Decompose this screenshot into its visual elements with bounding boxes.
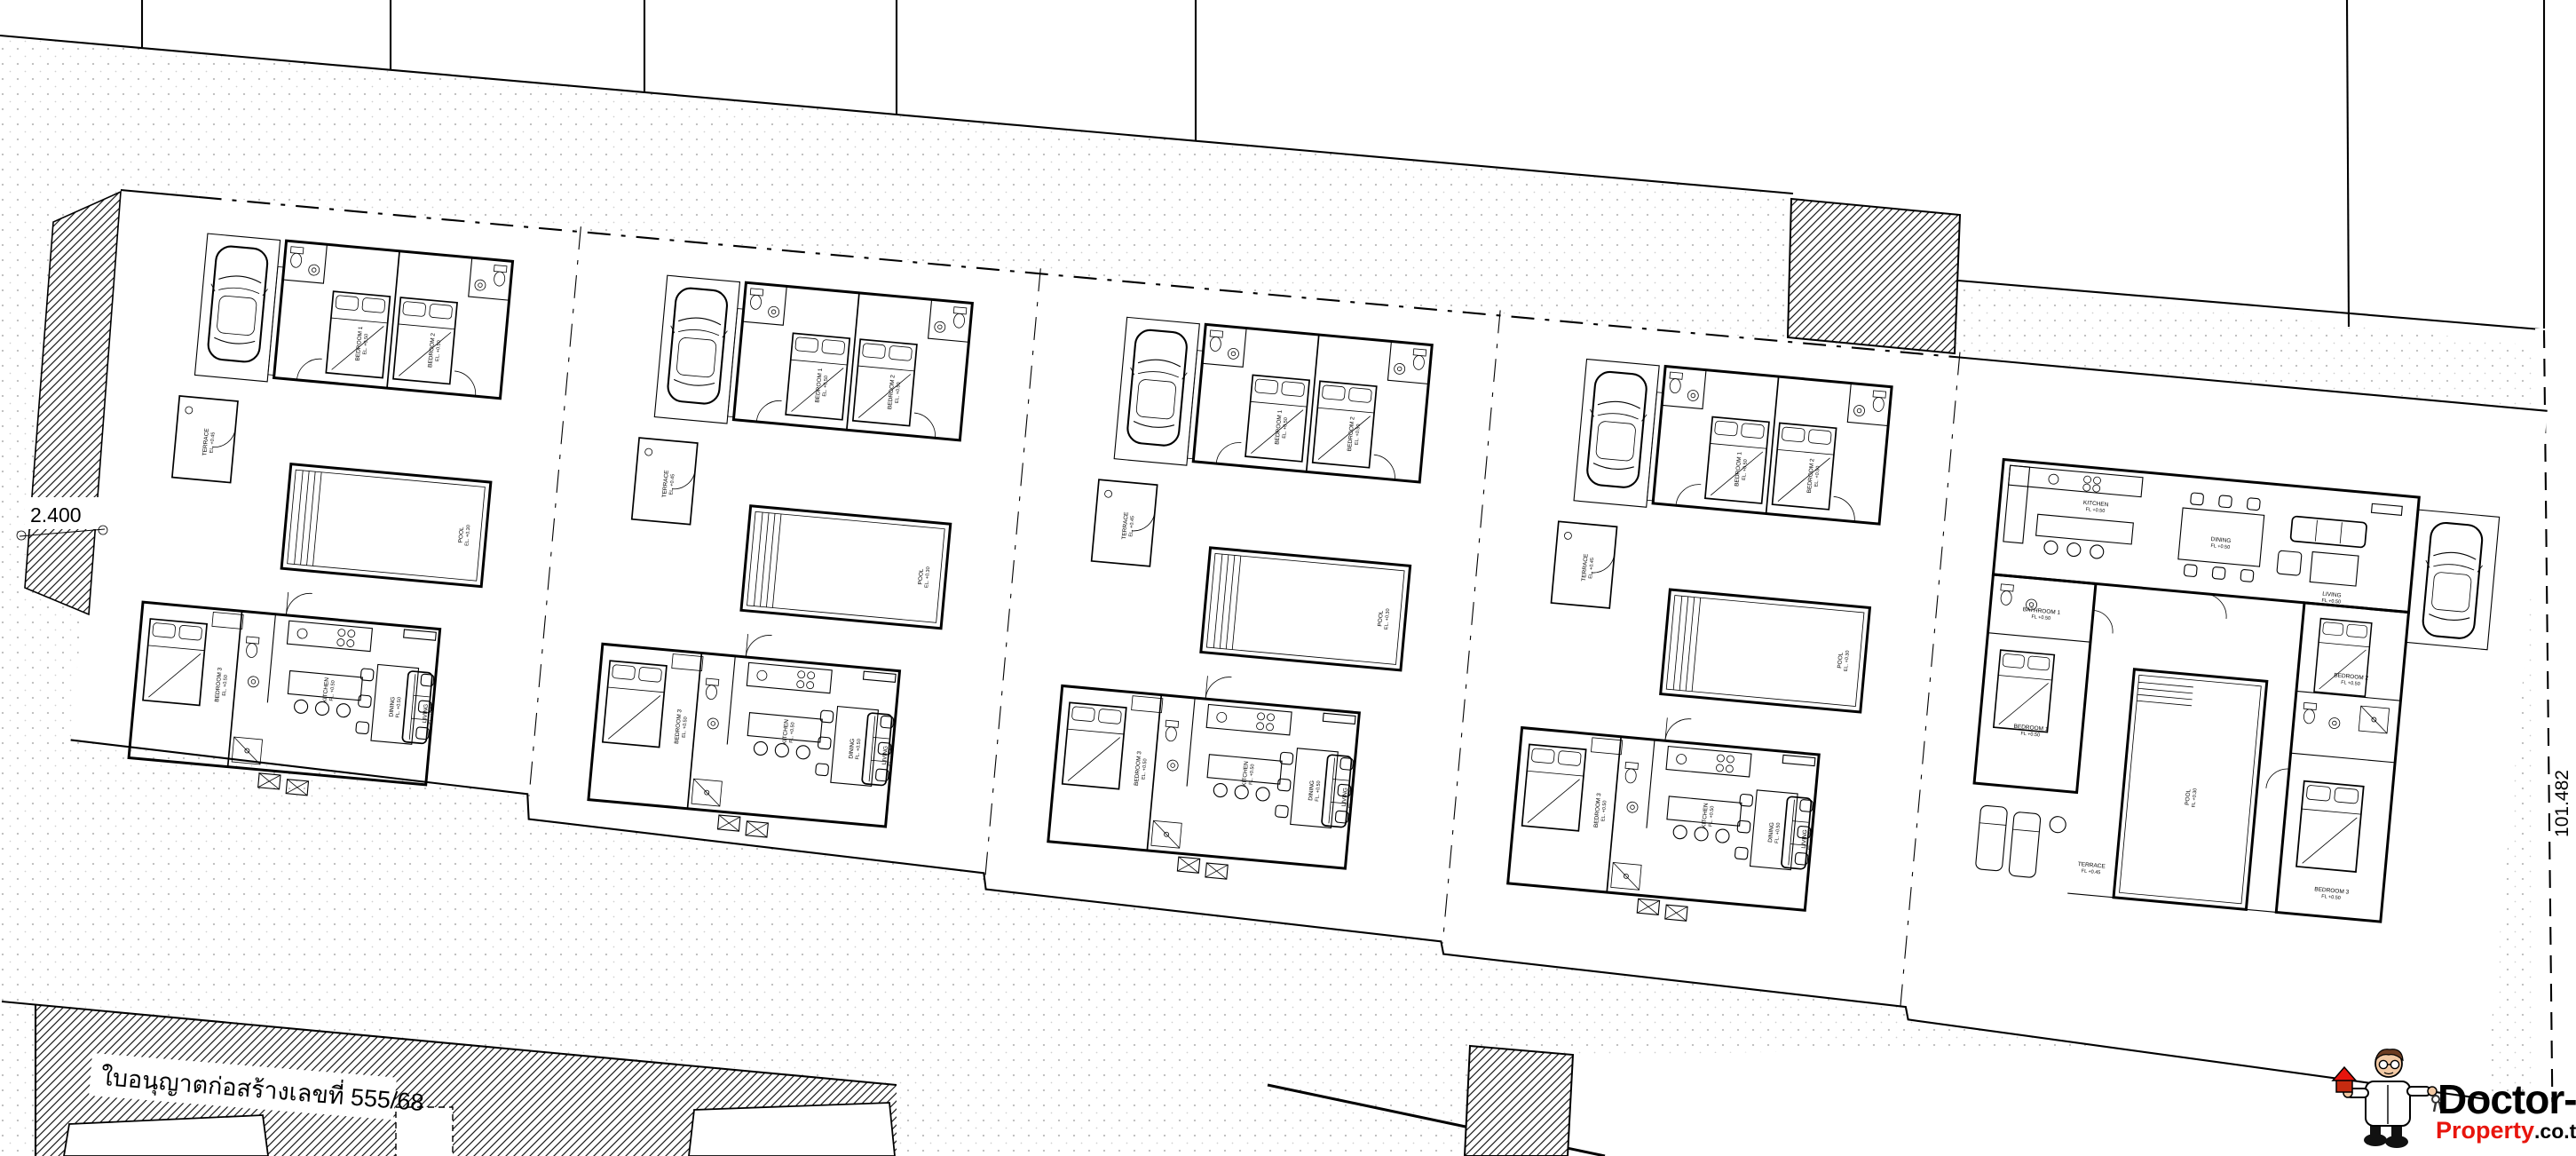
- neighbour-building-hatched: [1788, 199, 1960, 353]
- dimension-right-text: 101.482: [2552, 770, 2572, 837]
- logo-subtitle: Property.co.th: [2436, 1117, 2576, 1144]
- logo-title: Doctor-: [2438, 1076, 2576, 1122]
- room-label: DININGFL +0.50: [2210, 536, 2232, 550]
- south-building-hatched: [1465, 1046, 1573, 1156]
- room-label: LIVINGFL +0.50: [2321, 591, 2342, 606]
- site-plan-drawing: BEDROOM 1EL. +0.50BEDROOM 2EL. +0.50TERR…: [0, 0, 2576, 1156]
- site-plan-sheet: BEDROOM 1EL. +0.50BEDROOM 2EL. +0.50TERR…: [0, 0, 2576, 1156]
- room-label: POOLEL. +0.30: [457, 524, 471, 546]
- dimension-left-text: 2.400: [30, 503, 82, 527]
